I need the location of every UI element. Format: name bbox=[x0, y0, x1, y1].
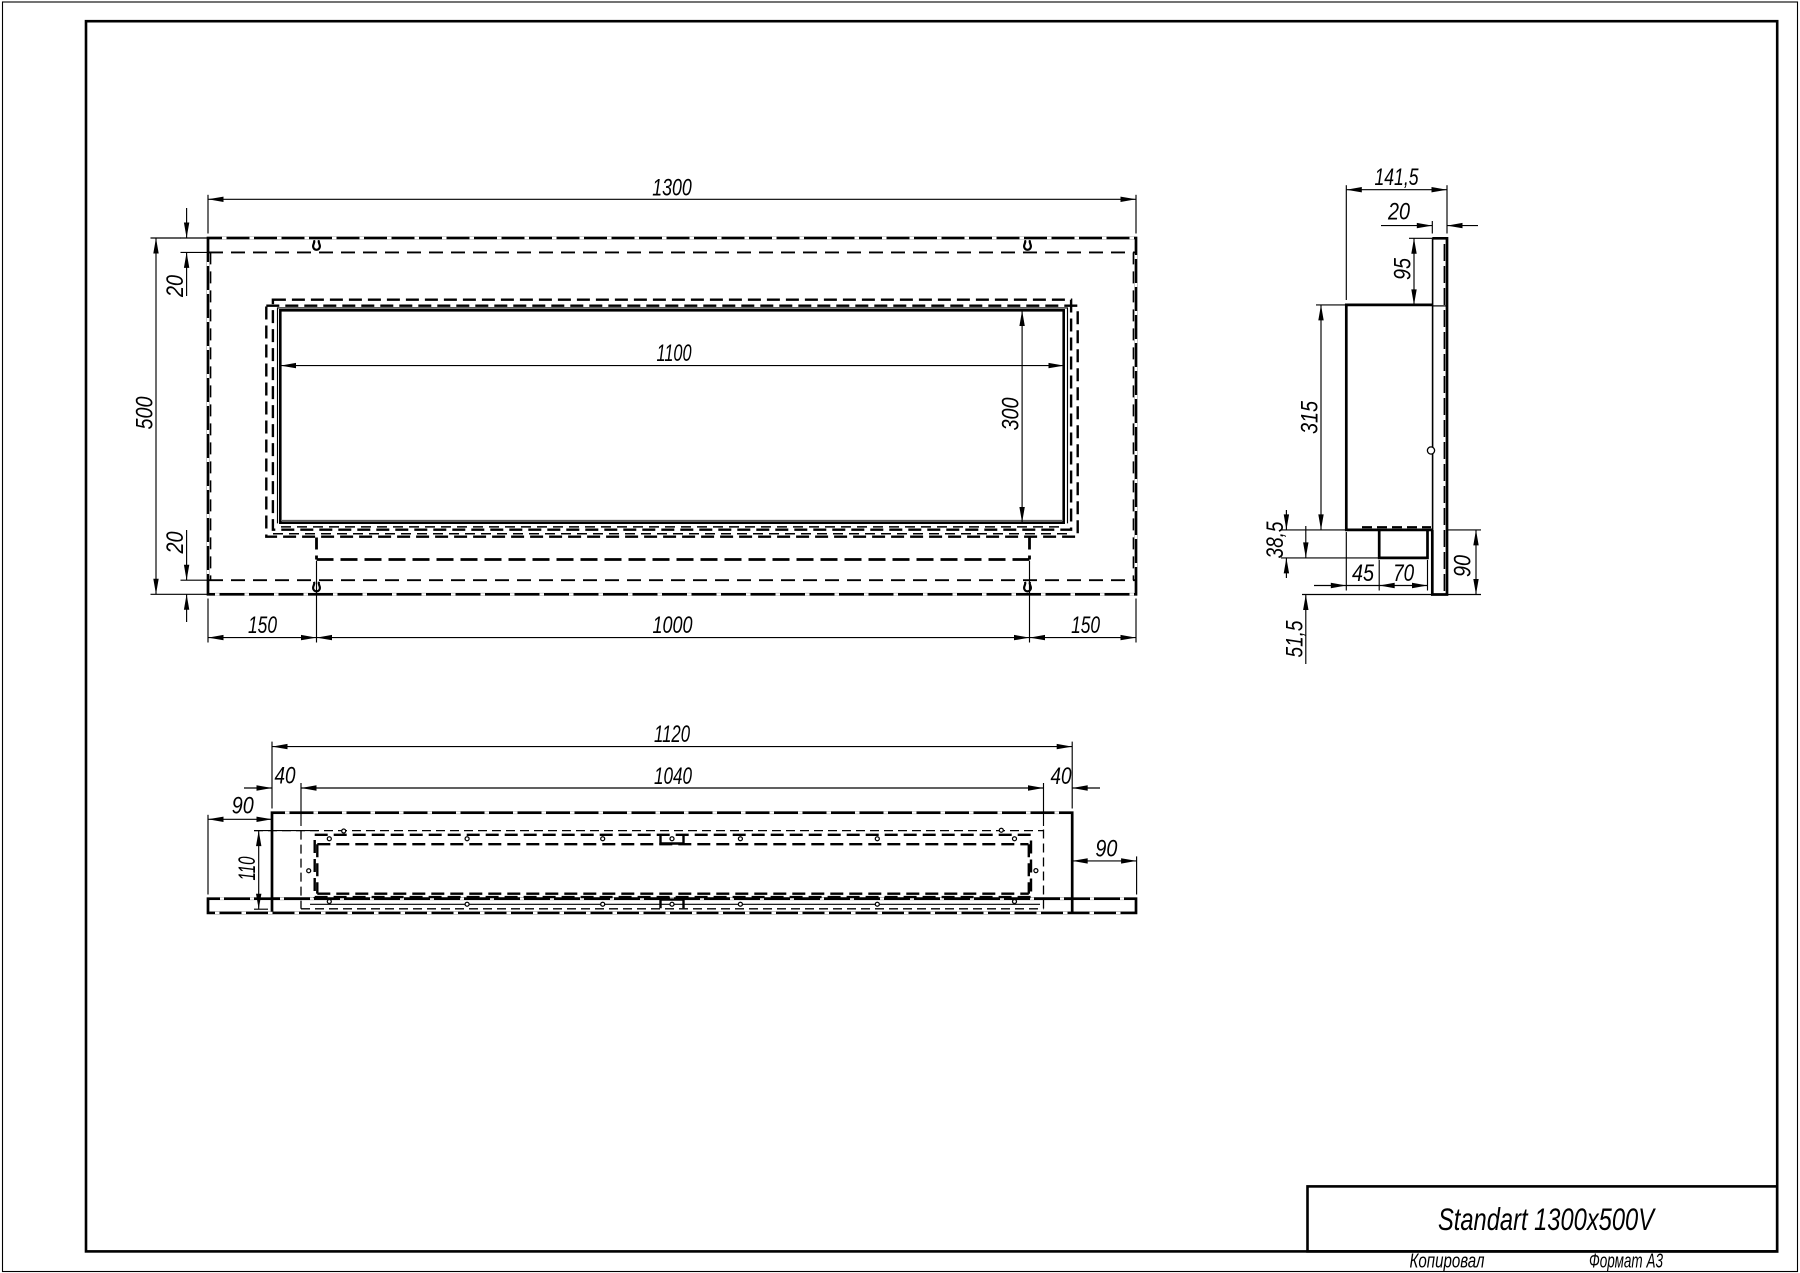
svg-text:1040: 1040 bbox=[654, 763, 692, 790]
svg-text:Формат А3: Формат А3 bbox=[1589, 1251, 1663, 1273]
svg-text:90: 90 bbox=[1095, 835, 1118, 862]
svg-text:1300: 1300 bbox=[652, 175, 692, 202]
svg-text:51,5: 51,5 bbox=[1281, 620, 1308, 658]
svg-text:20: 20 bbox=[1387, 199, 1410, 226]
svg-text:95: 95 bbox=[1390, 257, 1417, 280]
svg-text:1100: 1100 bbox=[657, 340, 692, 367]
svg-text:1000: 1000 bbox=[653, 612, 693, 639]
svg-text:90: 90 bbox=[232, 792, 255, 819]
svg-text:Копировал: Копировал bbox=[1410, 1251, 1485, 1273]
svg-text:20: 20 bbox=[162, 274, 189, 297]
svg-text:40: 40 bbox=[275, 763, 297, 790]
svg-text:150: 150 bbox=[1071, 612, 1100, 639]
svg-text:150: 150 bbox=[248, 612, 277, 639]
svg-text:40: 40 bbox=[1051, 763, 1073, 790]
svg-text:110: 110 bbox=[234, 856, 261, 880]
svg-text:300: 300 bbox=[998, 397, 1025, 431]
svg-text:1120: 1120 bbox=[654, 721, 690, 748]
svg-text:20: 20 bbox=[162, 531, 189, 554]
svg-text:45: 45 bbox=[1352, 560, 1375, 587]
svg-text:70: 70 bbox=[1393, 560, 1415, 587]
svg-text:38,5: 38,5 bbox=[1262, 521, 1289, 559]
svg-text:315: 315 bbox=[1297, 400, 1324, 434]
svg-text:141,5: 141,5 bbox=[1375, 164, 1419, 191]
svg-text:90: 90 bbox=[1450, 554, 1477, 577]
svg-text:Standart 1300x500V: Standart 1300x500V bbox=[1438, 1201, 1656, 1237]
svg-text:500: 500 bbox=[132, 396, 159, 430]
